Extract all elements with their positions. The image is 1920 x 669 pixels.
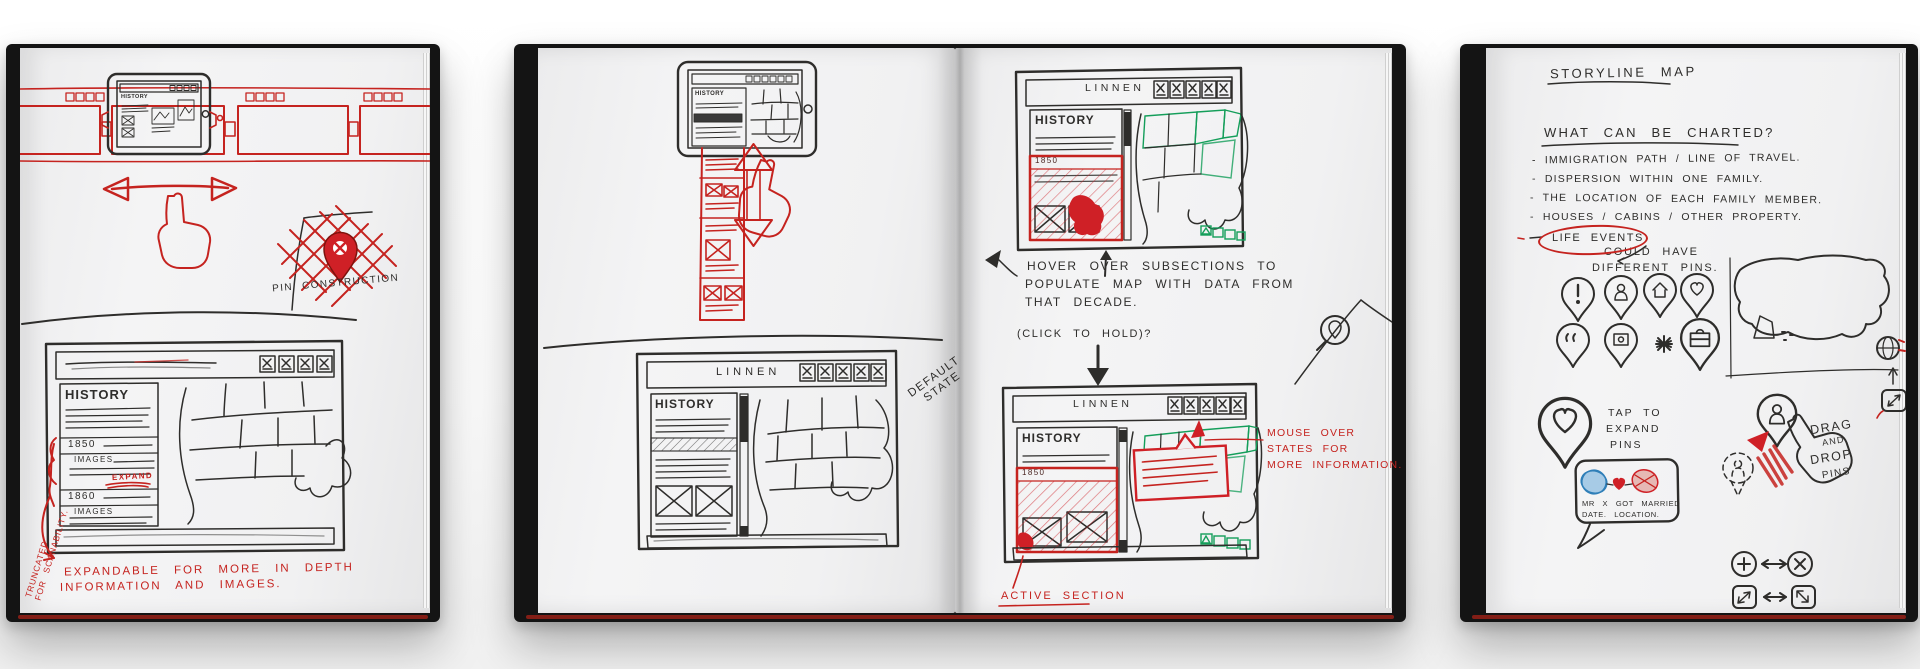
footer-bar [56, 528, 334, 546]
tablet-sidebar-title: HISTORY [695, 91, 724, 98]
tooltip-box [1133, 433, 1228, 501]
top-wireframe-sidebar-title: HISTORY [1035, 114, 1095, 127]
scrolling-strip-sketch [700, 148, 744, 320]
tablet-sketch [678, 62, 816, 156]
collapse-icon [1792, 586, 1815, 608]
browser-wireframe [637, 351, 898, 549]
title-underline [1548, 82, 1670, 84]
photo-pin-icon [1605, 324, 1637, 367]
page2-sketch-svg [538, 48, 955, 613]
house-pin-icon [1644, 274, 1676, 317]
scrollbar [1119, 428, 1127, 552]
person-pin-icon [1605, 276, 1637, 319]
map-sketch [180, 382, 351, 524]
legend-swatches [1201, 226, 1245, 240]
cluster-pin-icon [1656, 336, 1672, 352]
sketchbook-2: HISTORY LINNEN HISTORY DEFAULT STATE [514, 44, 1406, 622]
red-marks [1899, 340, 1905, 351]
bubble-text-line1: MR X GOT MARRIED [1582, 500, 1680, 508]
sidebar-text-lines [656, 419, 730, 530]
checkbox-icons [800, 364, 886, 381]
fullscreen-icon [1882, 390, 1906, 411]
checkbox-icons [1154, 81, 1231, 98]
briefcase-pin-icon [1681, 319, 1719, 370]
active-section-hatch [1030, 169, 1122, 240]
hover-note-line2: POPULATE MAP WITH DATA FROM [1025, 278, 1294, 291]
tablet-sidebar-title: HISTORY [121, 94, 148, 100]
expand-icon [1733, 586, 1756, 608]
wireframe-title: LINNEN [716, 366, 780, 378]
book2-right-page: LINNEN HISTORY 1850 HOVER OVER SUBSECTIO… [955, 48, 1392, 613]
book3-page: STORYLINE MAP WHAT CAN BE CHARTED? - IMM… [1486, 48, 1906, 613]
images-label-2: IMAGES [74, 508, 114, 517]
pointer-arrow-to-left-page [985, 250, 1017, 276]
divider-line [544, 336, 942, 348]
book3-red-edge [1472, 615, 1906, 619]
heart-pin-icon [1681, 274, 1713, 317]
pointing-hand-icon [158, 194, 210, 268]
tablet-map-grid [751, 89, 801, 142]
swap-arrow-icon [1762, 560, 1786, 568]
zoom-out-icon [1788, 552, 1812, 576]
filmstrip-sketch [20, 88, 430, 162]
top-wireframe-title: LINNEN [1085, 83, 1145, 95]
us-map-sketch [1726, 256, 1906, 419]
heart-icon [1613, 478, 1625, 490]
drag-motion-scribble [1747, 431, 1792, 486]
hover-note-line3: THAT DECADE. [1025, 296, 1138, 309]
wireframe-sidebar-title: HISTORY [655, 398, 715, 411]
question-underline [1542, 143, 1738, 146]
bubble-text-line2: DATE. LOCATION. [1582, 511, 1659, 519]
legend-swatches [1201, 534, 1250, 549]
sketchbook-1: HISTORY PIN CONSTRUCTION HISTORY 1850 IM… [6, 44, 440, 622]
storyline-map-title: STORYLINE MAP [1550, 65, 1697, 82]
footer-bar [647, 534, 887, 548]
checkbox-icons [260, 356, 332, 372]
could-have-line2: DIFFERENT PINS. [1592, 262, 1718, 274]
active-section-label: ACTIVE SECTION [1001, 590, 1126, 602]
map-pin-icon [324, 233, 357, 282]
click-to-hold-note: (CLICK TO HOLD)? [1017, 328, 1152, 340]
map-sketch [754, 396, 893, 536]
tooltip-connector-line [1205, 439, 1263, 440]
bottom-wireframe-title: LINNEN [1073, 399, 1133, 411]
globe-icon [1877, 337, 1899, 359]
sketchbook-scene: HISTORY PIN CONSTRUCTION HISTORY 1850 IM… [0, 0, 1920, 669]
hatched-divider [651, 438, 737, 451]
checkbox-icons [1168, 397, 1245, 414]
scrollbar [1124, 110, 1131, 240]
book2-gutter [938, 48, 982, 613]
exclamation-pin-icon [1562, 278, 1594, 321]
images-label-1: IMAGES [74, 456, 114, 465]
corner-magnifier-icon [1295, 300, 1392, 384]
scrollbar [740, 394, 748, 536]
tap-note-line1: TAP TO [1608, 408, 1662, 420]
book1-red-edge [18, 615, 428, 619]
image-placeholder-icons [656, 486, 732, 516]
book2-red-edge [526, 615, 1394, 619]
dashed-pin-icon [1723, 453, 1753, 496]
what-can-be-charted: WHAT CAN BE CHARTED? [1544, 126, 1775, 141]
heart-pin-large-icon [1539, 398, 1590, 467]
year-1850-label: 1850 [68, 439, 96, 450]
zoom-in-icon [1732, 552, 1756, 576]
bullet-property: - HOUSES / CABINS / OTHER PROPERTY. [1530, 212, 1802, 224]
hover-note-line1: HOVER OVER SUBSECTIONS TO [1027, 260, 1277, 273]
bottom-active-year: 1850 [1022, 469, 1045, 478]
book2-left-page: HISTORY LINNEN HISTORY DEFAULT STATE [538, 48, 955, 613]
top-active-year: 1850 [1035, 157, 1058, 166]
expand-scribble [106, 483, 150, 488]
mouse-note-line1: MOUSE OVER [1267, 428, 1355, 440]
red-photo-circle [1629, 466, 1661, 496]
map-sketch [1136, 110, 1248, 244]
bullet-dispersion: - DISPERSION WITHIN ONE FAMILY. [1532, 174, 1763, 186]
year-1860-label: 1860 [68, 491, 96, 502]
sketchbook-3: STORYLINE MAP WHAT CAN BE CHARTED? - IMM… [1460, 44, 1918, 622]
blue-photo-circle [1578, 467, 1610, 496]
wireframe-sidebar-title: HISTORY [65, 388, 129, 403]
red-tick [1518, 238, 1524, 239]
quote-pin-icon [1557, 324, 1589, 367]
red-tick-2 [1877, 411, 1883, 418]
swap-arrow-icon-2 [1764, 593, 1786, 601]
book1-page: HISTORY PIN CONSTRUCTION HISTORY 1850 IM… [20, 48, 430, 613]
tablet-sketch [102, 74, 223, 154]
page1-sketch-svg [20, 48, 430, 613]
cursor-arrow-icon [1191, 420, 1205, 438]
tap-note-line2: EXPAND [1606, 424, 1660, 436]
mouse-note-line2: STATES FOR [1267, 444, 1348, 456]
mouse-note-line3: MORE INFORMATION. [1267, 460, 1402, 472]
divider-line [22, 312, 356, 324]
tap-note-line3: PINS [1610, 440, 1643, 452]
bottom-wireframe-sidebar-title: HISTORY [1022, 432, 1082, 445]
down-arrow [1087, 346, 1109, 386]
